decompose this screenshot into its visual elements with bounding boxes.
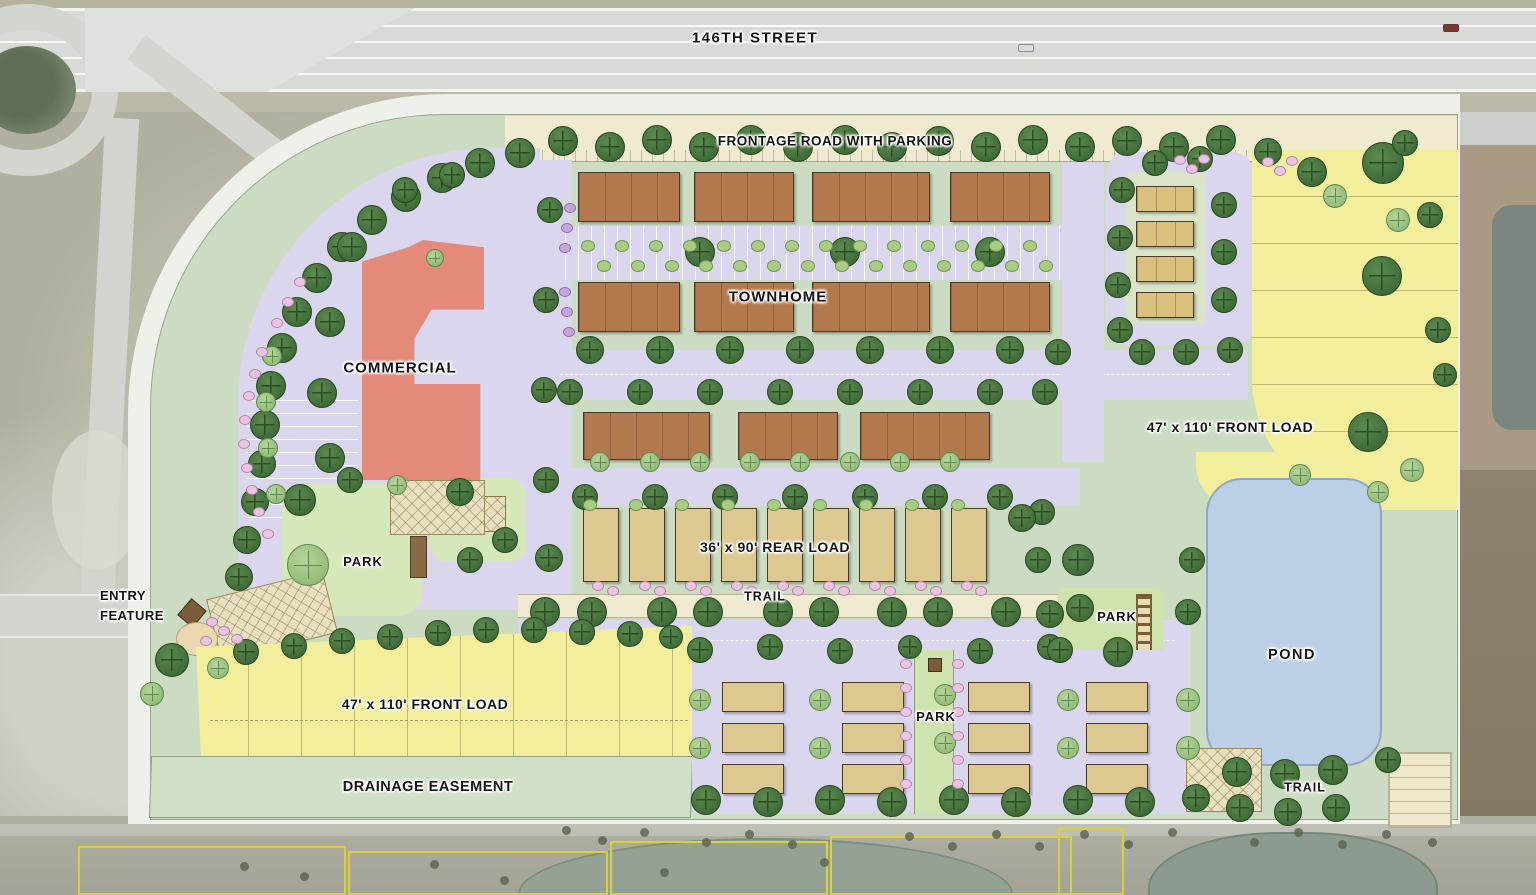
street-tree <box>1274 798 1302 826</box>
street-tree <box>531 377 557 403</box>
shrub-purple <box>559 243 571 253</box>
street-tree <box>1032 379 1058 405</box>
ornamental-tree <box>387 475 407 495</box>
shrub-pink <box>1286 156 1298 166</box>
shrub-green <box>785 240 799 252</box>
ornamental-tree <box>790 452 810 472</box>
label-frontage-road: FRONTAGE ROAD WITH PARKING <box>718 132 952 153</box>
label-park-right: PARK <box>1097 607 1137 627</box>
townhome-building <box>950 172 1050 222</box>
parcel-outline <box>1058 828 1124 895</box>
street-tree <box>284 484 316 516</box>
rear-load-building <box>951 508 987 582</box>
street-tree <box>1142 150 1168 176</box>
ornamental-tree <box>1176 736 1200 760</box>
street-tree <box>693 597 723 627</box>
rear-load-building-south <box>722 723 784 753</box>
townhome-building <box>812 172 930 222</box>
label-entry-feature: ENTRY FEATURE <box>100 586 164 626</box>
aerial-tree <box>905 832 914 841</box>
street-tree <box>877 787 907 817</box>
shrub-green <box>903 260 917 272</box>
label-pond: POND <box>1268 644 1316 666</box>
ornamental-tree <box>258 438 278 458</box>
rear-load-building-south <box>1086 682 1148 712</box>
street-tree <box>595 132 625 162</box>
shrub-pink <box>952 659 964 669</box>
street-tree <box>535 544 563 572</box>
shrub-pink <box>256 347 268 357</box>
street-tree <box>155 643 189 677</box>
rear-load-building-south <box>842 682 904 712</box>
aerial-tree <box>1382 830 1391 839</box>
street-tree <box>907 379 933 405</box>
street-tree <box>492 527 518 553</box>
street-tree <box>939 785 969 815</box>
shrub-green <box>649 240 663 252</box>
vehicle <box>1018 44 1034 52</box>
shrub-pink <box>700 586 712 596</box>
ornamental-tree <box>1057 737 1079 759</box>
generated-layer: 146TH STREETFRONTAGE ROAD WITH PARKINGTO… <box>0 0 1536 895</box>
aerial-tree <box>240 862 249 871</box>
shrub-pink <box>952 731 964 741</box>
street-tree <box>1001 787 1031 817</box>
shrub-green <box>859 499 873 511</box>
rear-load-building <box>629 508 665 582</box>
street-tree <box>815 785 845 815</box>
street-tree <box>1392 130 1418 156</box>
shrub-green <box>1023 240 1037 252</box>
street-tree <box>533 467 559 493</box>
street-tree <box>1025 547 1051 573</box>
street-tree <box>1062 544 1094 576</box>
shrub-pink <box>294 277 306 287</box>
shrub-purple <box>564 203 576 213</box>
shrub-green <box>819 240 833 252</box>
shrub-green <box>971 260 985 272</box>
rear-load-building-south <box>968 682 1030 712</box>
street-tree <box>687 637 713 663</box>
aerial-tree <box>640 828 649 837</box>
shrub-green <box>835 260 849 272</box>
street-tree <box>1211 239 1237 265</box>
street-tree <box>548 126 578 156</box>
label-trail-center: TRAIL <box>744 587 786 606</box>
street-tree <box>1417 202 1443 228</box>
shrub-pink <box>262 529 274 539</box>
shrub-purple <box>559 287 571 297</box>
street-tree <box>996 336 1024 364</box>
aerial-tree <box>1035 842 1044 851</box>
ornamental-tree <box>809 689 831 711</box>
street-tree <box>1433 363 1457 387</box>
aerial-tree <box>1294 828 1303 837</box>
shrub-pink <box>654 586 666 596</box>
street-tree <box>837 379 863 405</box>
label-park-bottom: PARK <box>916 707 956 727</box>
ornamental-tree <box>140 682 164 706</box>
shrub-purple <box>561 223 573 233</box>
street-tree <box>967 638 993 664</box>
shrub-green <box>683 240 697 252</box>
aerial-tree <box>745 830 754 839</box>
ornamental-tree <box>1367 481 1389 503</box>
shrub-pink <box>239 415 251 425</box>
shrub-green <box>717 240 731 252</box>
shrub-pink <box>271 318 283 328</box>
street-tree <box>1103 637 1133 667</box>
street-tree <box>557 379 583 405</box>
label-townhome: TOWNHOME <box>729 285 828 308</box>
shrub-pink <box>238 439 250 449</box>
street-tree <box>971 132 1001 162</box>
shrub-green <box>665 260 679 272</box>
ornamental-tree <box>809 737 831 759</box>
street-tree <box>281 633 307 659</box>
shrub-green <box>767 260 781 272</box>
street-tree <box>537 197 563 223</box>
shrub-pink <box>607 586 619 596</box>
shrub-pink <box>961 581 973 591</box>
rear-load-building-south <box>722 682 784 712</box>
ornamental-tree <box>207 657 229 679</box>
ornamental-tree <box>1057 689 1079 711</box>
street-tree <box>1175 599 1201 625</box>
ornamental-tree <box>690 452 710 472</box>
street-tree <box>691 785 721 815</box>
aerial-tree <box>562 826 571 835</box>
street-tree <box>617 621 643 647</box>
street-tree <box>1063 785 1093 815</box>
street-tree <box>922 484 948 510</box>
townhome-building-east <box>1136 186 1194 212</box>
street-tree <box>233 526 261 554</box>
shrub-pink <box>685 581 697 591</box>
street-tree <box>923 597 953 627</box>
site-plan-map: 146TH STREETFRONTAGE ROAD WITH PARKINGTO… <box>0 0 1536 895</box>
street-tree <box>1226 794 1254 822</box>
street-tree <box>1008 504 1036 532</box>
street-tree <box>377 624 403 650</box>
shrub-green <box>921 240 935 252</box>
parcel-outline <box>78 846 346 895</box>
townhome-building-east <box>1136 292 1194 318</box>
shrub-green <box>937 260 951 272</box>
label-commercial: COMMERCIAL <box>343 356 456 379</box>
parcel-outline <box>610 841 828 895</box>
shrub-pink <box>200 636 212 646</box>
rear-load-building-south <box>968 723 1030 753</box>
street-tree <box>1348 412 1388 452</box>
ornamental-tree <box>640 452 660 472</box>
ornamental-tree <box>840 452 860 472</box>
shrub-pink <box>246 485 258 495</box>
ornamental-tree <box>1323 184 1347 208</box>
shrub-green <box>905 499 919 511</box>
street-tree <box>1047 637 1073 663</box>
shrub-pink <box>900 779 912 789</box>
shrub-pink <box>206 617 218 627</box>
aerial-tree <box>500 876 509 885</box>
street-tree <box>576 336 604 364</box>
street-tree <box>991 597 1021 627</box>
street-tree <box>569 619 595 645</box>
shrub-pink <box>253 507 265 517</box>
label-front-load-right: 47' x 110' FRONT LOAD <box>1147 417 1314 439</box>
shrub-green <box>853 240 867 252</box>
shrub-pink <box>241 463 253 473</box>
shrub-pink <box>249 369 261 379</box>
street-tree <box>457 547 483 573</box>
shrub-pink <box>975 586 987 596</box>
shrub-pink <box>792 586 804 596</box>
rear-load-building <box>583 508 619 582</box>
street-tree <box>757 634 783 660</box>
street-tree <box>716 336 744 364</box>
shrub-pink <box>282 297 294 307</box>
street-tree <box>1211 192 1237 218</box>
shrub-green <box>989 240 1003 252</box>
street-tree <box>225 563 253 591</box>
street-tree <box>1211 287 1237 313</box>
shrub-pink <box>1274 166 1286 176</box>
street-tree <box>1109 177 1135 203</box>
shrub-pink <box>900 683 912 693</box>
shrub-purple <box>561 307 573 317</box>
label-rear-load: 36' x 90' REAR LOAD <box>700 537 850 559</box>
shrub-pink <box>900 755 912 765</box>
rear-load-building-south <box>1086 723 1148 753</box>
shrub-pink <box>731 581 743 591</box>
shrub-green <box>631 260 645 272</box>
ornamental-tree <box>256 392 276 412</box>
street-tree <box>533 287 559 313</box>
street-tree <box>1375 747 1401 773</box>
street-tree <box>786 336 814 364</box>
aerial-tree <box>1428 838 1437 847</box>
label-street-146th: 146TH STREET <box>692 26 818 49</box>
street-tree <box>357 205 387 235</box>
street-tree <box>1182 784 1210 812</box>
street-tree <box>1222 757 1252 787</box>
street-tree <box>977 379 1003 405</box>
shrub-pink <box>1198 154 1210 164</box>
street-tree <box>302 263 332 293</box>
shrub-pink <box>1262 157 1274 167</box>
shrub-pink <box>900 731 912 741</box>
aerial-tree <box>1338 840 1347 849</box>
street-tree <box>505 138 535 168</box>
street-tree <box>659 625 683 649</box>
ornamental-tree <box>266 484 286 504</box>
street-tree <box>1322 794 1350 822</box>
aerial-tree <box>300 872 309 881</box>
street-tree <box>1036 600 1064 628</box>
street-tree <box>753 787 783 817</box>
shrub-green <box>751 240 765 252</box>
shrub-pink <box>1174 155 1186 165</box>
street-tree <box>1129 339 1155 365</box>
street-tree <box>647 597 677 627</box>
shrub-green <box>699 260 713 272</box>
shrub-pink <box>952 779 964 789</box>
ornamental-tree <box>689 689 711 711</box>
townhome-building-east <box>1136 256 1194 282</box>
street-tree <box>315 443 345 473</box>
street-tree <box>856 336 884 364</box>
ornamental-tree <box>689 737 711 759</box>
street-tree <box>337 232 367 262</box>
shrub-green <box>721 499 735 511</box>
street-tree <box>1107 225 1133 251</box>
street-tree <box>646 336 674 364</box>
street-tree <box>307 378 337 408</box>
aerial-tree <box>1168 828 1177 837</box>
townhome-building <box>860 412 990 460</box>
townhome-building <box>578 282 680 332</box>
ornamental-tree <box>890 452 910 472</box>
aerial-tree <box>1080 830 1089 839</box>
townhome-building <box>694 172 794 222</box>
shrub-pink <box>952 755 964 765</box>
shrub-purple <box>563 327 575 337</box>
aerial-tree <box>430 860 439 869</box>
shrub-pink <box>900 707 912 717</box>
aerial-tree <box>948 842 957 851</box>
rear-load-building <box>859 508 895 582</box>
street-tree <box>1066 594 1094 622</box>
shrub-pink <box>838 586 850 596</box>
shrub-green <box>801 260 815 272</box>
shrub-pink <box>869 581 881 591</box>
shrub-pink <box>592 581 604 591</box>
shrub-green <box>869 260 883 272</box>
shrub-pink <box>952 683 964 693</box>
shrub-green <box>767 499 781 511</box>
ornamental-tree <box>1400 458 1424 482</box>
ornamental-tree <box>740 452 760 472</box>
ornamental-tree <box>287 544 329 586</box>
label-front-load-left: 47' x 110' FRONT LOAD <box>342 694 509 716</box>
aerial-tree <box>1250 838 1259 847</box>
townhome-building <box>812 282 930 332</box>
shrub-green <box>1039 260 1053 272</box>
shrub-pink <box>218 626 230 636</box>
street-tree <box>392 177 418 203</box>
shrub-pink <box>900 659 912 669</box>
street-tree <box>473 617 499 643</box>
shrub-green <box>955 240 969 252</box>
shrub-pink <box>823 581 835 591</box>
street-tree <box>446 478 474 506</box>
shrub-green <box>675 499 689 511</box>
ornamental-tree <box>940 452 960 472</box>
shrub-green <box>581 240 595 252</box>
street-tree <box>315 307 345 337</box>
shrub-pink <box>243 391 255 401</box>
street-tree <box>809 597 839 627</box>
shrub-green <box>583 499 597 511</box>
shrub-green <box>813 499 827 511</box>
shrub-green <box>629 499 643 511</box>
street-tree <box>1125 787 1155 817</box>
parcel-outline <box>348 851 608 895</box>
street-tree <box>521 617 547 643</box>
ornamental-tree <box>590 452 610 472</box>
shrub-green <box>615 240 629 252</box>
shrub-green <box>733 260 747 272</box>
street-tree <box>642 125 672 155</box>
street-tree <box>1045 339 1071 365</box>
ornamental-tree <box>426 249 444 267</box>
aerial-tree <box>660 868 669 877</box>
street-tree <box>697 379 723 405</box>
street-tree <box>642 484 668 510</box>
street-tree <box>1425 317 1451 343</box>
street-tree <box>898 635 922 659</box>
aerial-tree <box>992 830 1001 839</box>
street-tree <box>1112 126 1142 156</box>
street-tree <box>767 379 793 405</box>
shrub-pink <box>231 634 243 644</box>
street-tree <box>425 620 451 646</box>
street-tree <box>439 162 465 188</box>
townhome-building-east <box>1136 221 1194 247</box>
street-tree <box>827 638 853 664</box>
street-tree <box>1105 272 1131 298</box>
street-tree <box>1018 125 1048 155</box>
street-tree <box>1107 317 1133 343</box>
shrub-pink <box>915 581 927 591</box>
street-tree <box>1297 157 1327 187</box>
ornamental-tree <box>1289 464 1311 486</box>
shrub-green <box>887 240 901 252</box>
street-tree <box>782 484 808 510</box>
street-tree <box>1217 337 1243 363</box>
street-tree <box>1173 339 1199 365</box>
street-tree <box>1065 132 1095 162</box>
street-tree <box>926 336 954 364</box>
street-tree <box>465 148 495 178</box>
ornamental-tree <box>1176 688 1200 712</box>
shrub-pink <box>1186 164 1198 174</box>
street-tree <box>337 467 363 493</box>
shrub-green <box>1005 260 1019 272</box>
street-tree <box>329 628 355 654</box>
street-tree <box>250 410 280 440</box>
aerial-tree <box>702 838 711 847</box>
street-tree <box>627 379 653 405</box>
street-tree <box>987 484 1013 510</box>
shrub-pink <box>884 586 896 596</box>
vehicle <box>1443 24 1459 32</box>
street-tree <box>1179 547 1205 573</box>
label-trail-bottom: TRAIL <box>1284 778 1326 797</box>
aerial-tree <box>820 858 829 867</box>
shrub-green <box>951 499 965 511</box>
ornamental-tree <box>1386 208 1410 232</box>
townhome-building <box>950 282 1050 332</box>
street-tree <box>1362 256 1402 296</box>
rear-load-building <box>905 508 941 582</box>
rear-load-building-south <box>842 723 904 753</box>
street-tree <box>689 132 719 162</box>
townhome-building <box>578 172 680 222</box>
aerial-tree <box>598 836 607 845</box>
shrub-pink <box>639 581 651 591</box>
shrub-green <box>597 260 611 272</box>
